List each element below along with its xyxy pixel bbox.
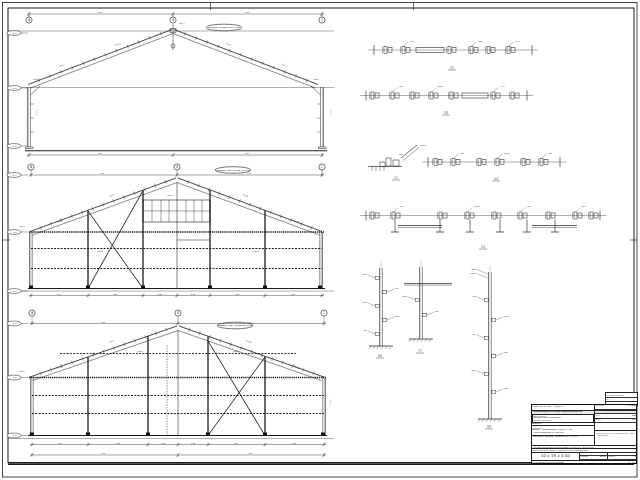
detail-label: 2-2 bbox=[450, 66, 454, 70]
svg-text:M16: M16 bbox=[582, 205, 586, 207]
stamp-cell: 10 x 19 x 4,60 bbox=[532, 452, 579, 460]
svg-text:Pos.8: Pos.8 bbox=[471, 369, 476, 371]
grid-bubble-label: B bbox=[177, 311, 179, 315]
elevation-frame-section bbox=[8, 24, 334, 151]
svg-text:M16: M16 bbox=[400, 205, 404, 207]
svg-text:Pos.8: Pos.8 bbox=[253, 250, 259, 252]
grid-bubble-label: A bbox=[28, 18, 30, 22]
svg-text:M12: M12 bbox=[460, 152, 464, 154]
title-block: Statik-Nr. 04-118 · Anlage 3 Ausführungs… bbox=[531, 404, 637, 464]
svg-text:Pos.5: Pos.5 bbox=[402, 295, 407, 297]
svg-text:Pos.6: Pos.6 bbox=[245, 339, 251, 343]
svg-text:Pos.3: Pos.3 bbox=[362, 273, 367, 275]
svg-text:Pos.8: Pos.8 bbox=[233, 350, 239, 352]
grid-bubble-label: C bbox=[321, 165, 323, 169]
svg-text:M12: M12 bbox=[399, 85, 403, 87]
svg-text:9,50: 9,50 bbox=[100, 172, 105, 175]
svg-text:IPE 140: IPE 140 bbox=[471, 272, 477, 274]
svg-text:Pos.7: Pos.7 bbox=[167, 194, 173, 196]
view-title: GIEBELWAND ACHSE 22 M 1:50 bbox=[217, 324, 253, 327]
grid-bubble-label: A bbox=[30, 165, 32, 169]
detail-label: 3-3 bbox=[444, 111, 448, 115]
svg-text:3,70: 3,70 bbox=[291, 293, 296, 296]
svg-text:3,70: 3,70 bbox=[57, 293, 62, 296]
detail-label: 5-5 bbox=[481, 245, 485, 249]
svg-text:Pos.4: Pos.4 bbox=[179, 22, 185, 24]
detail-label: 6-6 bbox=[378, 354, 382, 358]
svg-text:9,50: 9,50 bbox=[248, 452, 253, 455]
content-line2: Anschlussdetails 1-1 bis 8-8 bbox=[533, 432, 594, 435]
svg-text:M12: M12 bbox=[410, 40, 414, 42]
svg-text:9,50: 9,50 bbox=[101, 452, 106, 455]
svg-text:Pos.13: Pos.13 bbox=[420, 144, 426, 146]
grid-bubble-label: C bbox=[321, 18, 323, 22]
svg-text:Pos.12: Pos.12 bbox=[474, 205, 480, 207]
footer-left: Vervielfältigung nur mit Genehmigung bbox=[533, 461, 565, 463]
column-section-7 bbox=[415, 299, 427, 317]
svg-text:Pos.9: Pos.9 bbox=[478, 40, 483, 42]
elevation-gable-axis-22 bbox=[8, 326, 334, 439]
drawing-sheet: ABC9,509,509,509,50+6,04+4,60±0,00BINDER… bbox=[0, 0, 640, 480]
svg-text:Pos.10: Pos.10 bbox=[471, 268, 477, 270]
titleblock-footer: Vervielfältigung nur mit Genehmigung A1 … bbox=[532, 460, 636, 463]
svg-text:Kl 4.6: Kl 4.6 bbox=[515, 40, 520, 42]
grid-bubble-label: B bbox=[176, 165, 178, 169]
svg-text:M12: M12 bbox=[504, 351, 508, 353]
svg-text:3,70: 3,70 bbox=[58, 442, 63, 445]
svg-text:Pos.3: Pos.3 bbox=[395, 315, 400, 317]
svg-text:Pos.2: Pos.2 bbox=[281, 63, 287, 67]
svg-text:1,95: 1,95 bbox=[161, 442, 166, 445]
svg-text:9,50: 9,50 bbox=[247, 172, 252, 175]
office-address: Ingenieurbüro für Tragwerksplanung · Sta… bbox=[594, 430, 636, 445]
project-box: Bauvorhaben: Neubau einer Lagerhalle 10,… bbox=[532, 414, 594, 424]
svg-text:Pos.5: Pos.5 bbox=[313, 78, 319, 80]
svg-text:9,50: 9,50 bbox=[245, 11, 250, 14]
svg-text:3,55: 3,55 bbox=[113, 293, 118, 296]
svg-text:Kl 4.6: Kl 4.6 bbox=[500, 85, 505, 87]
svg-text:Pos.1: Pos.1 bbox=[36, 109, 38, 115]
grid-bubble-label: C bbox=[323, 311, 325, 315]
detail-label: 4-4 bbox=[494, 177, 498, 181]
svg-text:Pos.11: Pos.11 bbox=[504, 152, 509, 154]
svg-text:Pos.7: Pos.7 bbox=[137, 350, 143, 352]
svg-text:Pos.8: Pos.8 bbox=[97, 250, 103, 252]
generated-annotations: ABC9,509,509,509,50+6,04+4,60±0,00BINDER… bbox=[7, 11, 606, 457]
svg-text:M12: M12 bbox=[548, 152, 552, 154]
svg-text:1,95: 1,95 bbox=[191, 442, 196, 445]
svg-text:Bl 8: Bl 8 bbox=[473, 333, 476, 335]
svg-text:2,15: 2,15 bbox=[191, 293, 196, 296]
column-section-8 bbox=[484, 299, 496, 394]
svg-text:M12: M12 bbox=[399, 153, 403, 155]
svg-text:Pos.6: Pos.6 bbox=[242, 193, 248, 197]
titleblock-right-rows: Projekt04-118Datum12.05.gez.MBgepr.KH bbox=[594, 405, 636, 430]
svg-text:3,85: 3,85 bbox=[116, 442, 121, 445]
svg-text:Pos.9: Pos.9 bbox=[19, 225, 25, 227]
svg-text:M16: M16 bbox=[364, 329, 368, 331]
svg-text:3,65: 3,65 bbox=[234, 442, 239, 445]
content-box: Planinhalt: Binder · Giebelwände Achse 1… bbox=[532, 426, 594, 435]
base-plate bbox=[26, 147, 34, 149]
grid-bubble-label: A bbox=[31, 311, 33, 315]
plan-number-cells: Plan-Nr.S-03IndexaBlatt1 bbox=[607, 452, 636, 460]
svg-text:9,50: 9,50 bbox=[98, 11, 103, 14]
svg-text:2,20: 2,20 bbox=[158, 293, 163, 296]
base-plate bbox=[319, 147, 327, 149]
svg-text:Pos.6: Pos.6 bbox=[109, 193, 115, 197]
titleblock-row: gepr.KH bbox=[595, 419, 636, 424]
svg-text:Pos.9: Pos.9 bbox=[19, 370, 25, 372]
view-title: GIEBELWAND ACHSE 1 M 1:50 bbox=[216, 169, 251, 172]
svg-text:Pos.2: Pos.2 bbox=[59, 63, 65, 67]
scale-date-cells: Maßstab1:50Datum12.05.gez.MB bbox=[579, 452, 607, 460]
column-section-6 bbox=[375, 277, 387, 336]
svg-text:9,50: 9,50 bbox=[245, 152, 250, 155]
svg-text:9,50: 9,50 bbox=[98, 152, 103, 155]
svg-text:M16: M16 bbox=[435, 310, 439, 312]
svg-text:Pos.6: Pos.6 bbox=[109, 339, 115, 343]
svg-text:Pos.2: Pos.2 bbox=[225, 42, 231, 46]
svg-text:3,55: 3,55 bbox=[235, 293, 240, 296]
svg-text:3,80: 3,80 bbox=[292, 442, 297, 445]
frame-section-annotations bbox=[7, 14, 325, 148]
grid-bubble-label: B bbox=[172, 18, 174, 22]
detail-label: 1-1 bbox=[394, 176, 398, 180]
svg-text:M12: M12 bbox=[473, 295, 477, 297]
material-row: Stahlsorte S235JR · Schrauben 4.6 / 5.6 bbox=[532, 436, 594, 441]
building-size-stamp: 10 x 19 x 4,60 bbox=[532, 453, 579, 460]
svg-text:9,50: 9,50 bbox=[101, 321, 106, 324]
svg-text:Pos.8: Pos.8 bbox=[504, 315, 509, 317]
detail-label: 7-7 bbox=[418, 349, 422, 353]
svg-text:Pos.1: Pos.1 bbox=[330, 399, 332, 405]
view-title: BINDER ACHSE 2-21 M 1:50 bbox=[208, 26, 240, 29]
svg-text:Bl 10: Bl 10 bbox=[363, 301, 367, 303]
svg-text:U100: U100 bbox=[527, 205, 531, 207]
detail-label: 8-8 bbox=[487, 425, 491, 429]
svg-text:Pos.2: Pos.2 bbox=[115, 42, 121, 46]
footer-right: A1 · 1:50 bbox=[628, 461, 636, 463]
svg-text:M12: M12 bbox=[504, 387, 508, 389]
corner-detail-1 bbox=[368, 145, 419, 171]
svg-text:M16: M16 bbox=[395, 287, 399, 289]
svg-text:Pos.9: Pos.9 bbox=[438, 85, 443, 87]
svg-text:Pos.1: Pos.1 bbox=[330, 109, 332, 115]
